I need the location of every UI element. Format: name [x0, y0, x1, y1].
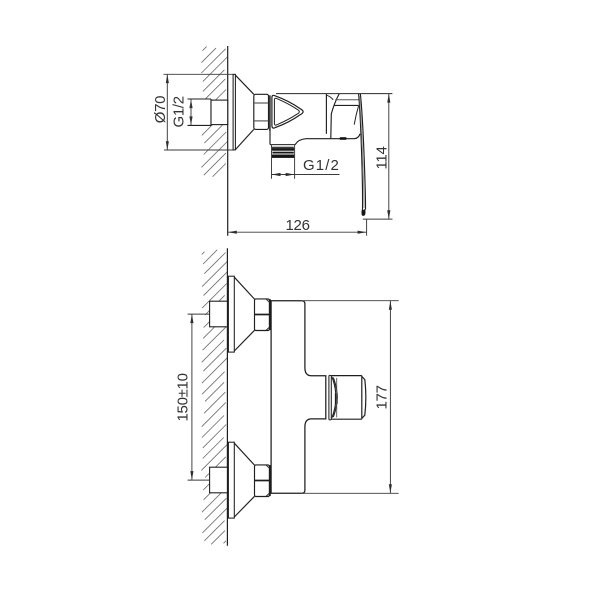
svg-text:114: 114: [374, 146, 391, 169]
svg-text:Ø70: Ø70: [152, 96, 169, 123]
svg-text:126: 126: [286, 217, 310, 234]
svg-text:G1/2: G1/2: [171, 96, 188, 127]
svg-text:G1/2: G1/2: [303, 157, 340, 174]
svg-text:177: 177: [374, 385, 391, 409]
svg-text:150±10: 150±10: [175, 373, 192, 421]
